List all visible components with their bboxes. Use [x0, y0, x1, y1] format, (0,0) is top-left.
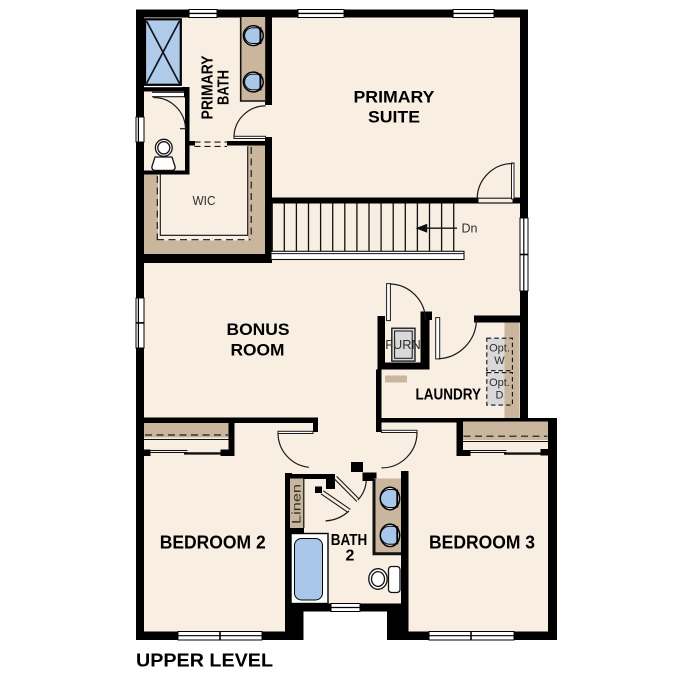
svg-text:BONUS: BONUS	[227, 320, 290, 339]
svg-text:WIC: WIC	[193, 194, 216, 208]
svg-text:UPPER LEVEL: UPPER LEVEL	[136, 650, 273, 670]
svg-text:BEDROOM 3: BEDROOM 3	[429, 532, 535, 552]
svg-text:Dn: Dn	[462, 222, 478, 236]
svg-text:W: W	[494, 355, 505, 367]
svg-text:FURN: FURN	[385, 338, 421, 352]
svg-text:Opt.: Opt.	[489, 377, 510, 389]
svg-text:BEDROOM 2: BEDROOM 2	[160, 532, 266, 552]
svg-text:LAUNDRY: LAUNDRY	[416, 386, 482, 403]
svg-text:PRIMARY: PRIMARY	[354, 88, 436, 107]
svg-text:ROOM: ROOM	[231, 340, 285, 359]
svg-text:2: 2	[346, 547, 355, 564]
svg-text:Opt.: Opt.	[489, 343, 510, 355]
svg-text:SUITE: SUITE	[368, 108, 420, 127]
svg-text:Linen: Linen	[292, 484, 304, 524]
svg-text:BATH: BATH	[216, 70, 233, 105]
svg-text:PRIMARY: PRIMARY	[200, 55, 217, 120]
svg-text:D: D	[496, 390, 504, 402]
